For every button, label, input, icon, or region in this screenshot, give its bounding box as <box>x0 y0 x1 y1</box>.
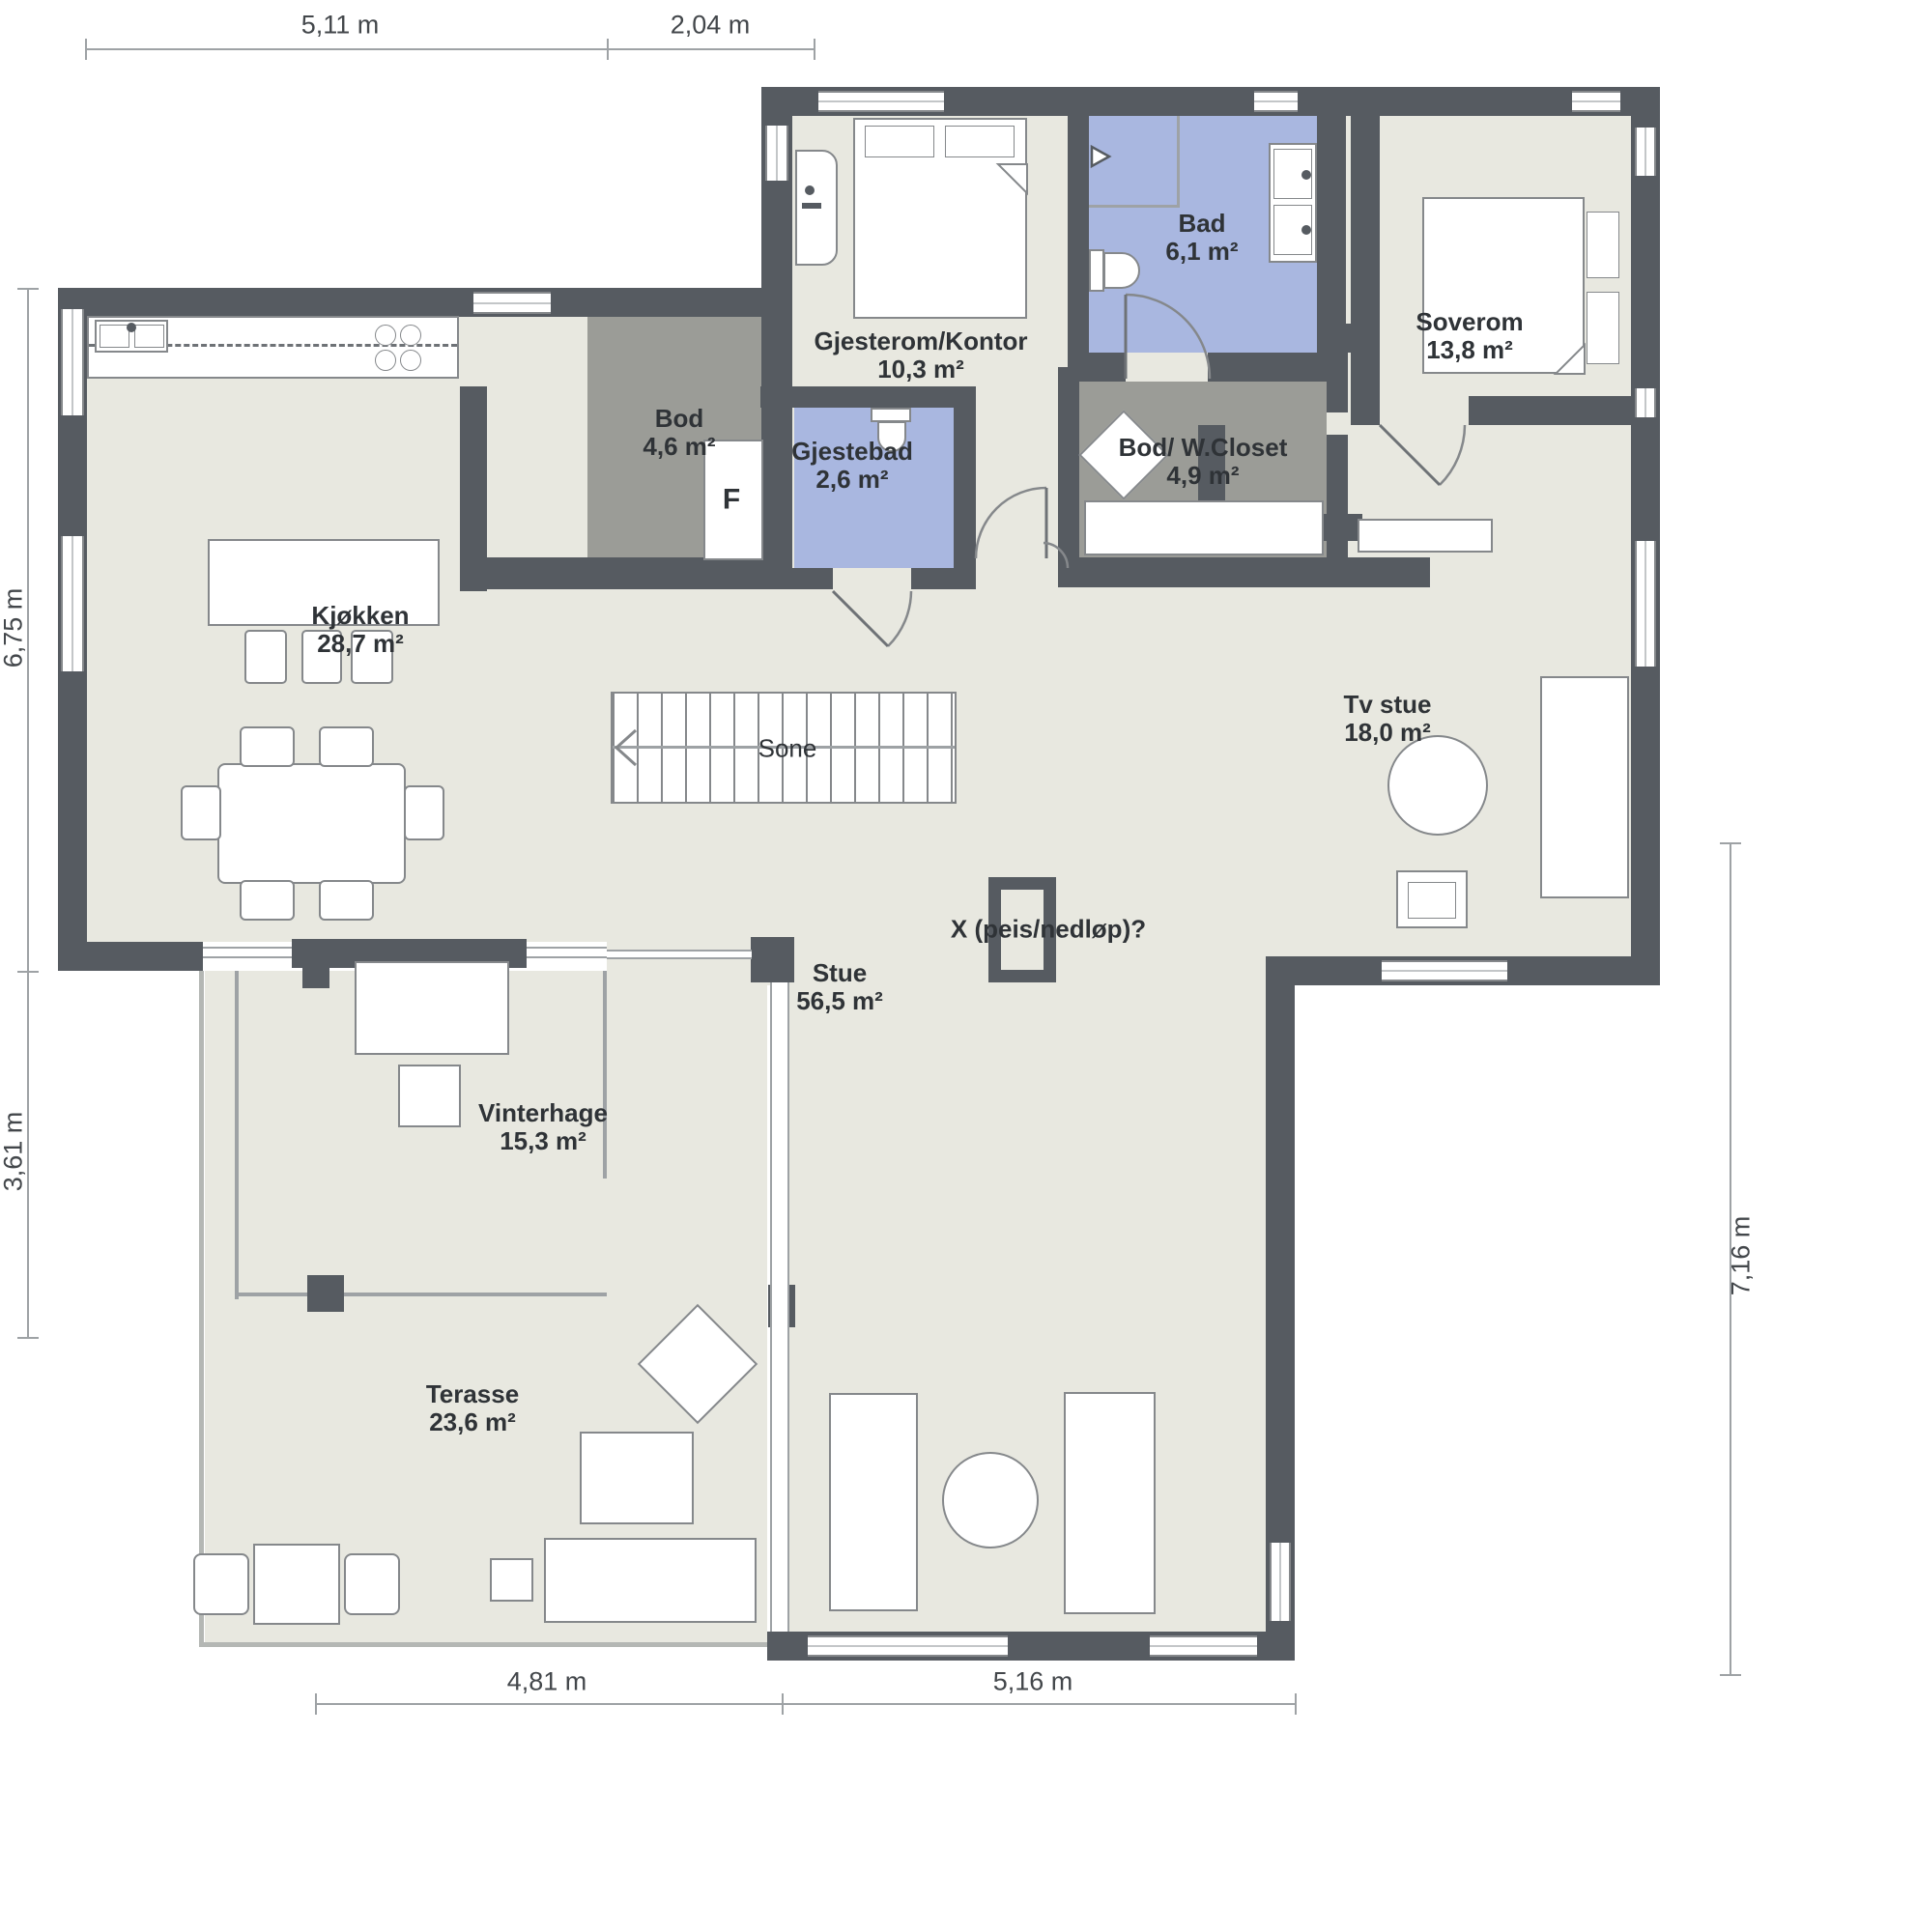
room-name: Bod <box>643 405 715 433</box>
floor-plan: 5,11 m 2,04 m 6,75 m 3,61 m 7,16 m 4,81 … <box>0 0 1916 1932</box>
room-area: 15,3 m² <box>478 1127 608 1155</box>
door-arc <box>888 591 911 646</box>
room-name: Bad <box>1165 210 1238 238</box>
room-area: 10,3 m² <box>814 355 1027 384</box>
room-label-bad: Bad 6,1 m² <box>1165 210 1238 266</box>
fireplace-note: X (peis/nedløp)? <box>951 916 1146 944</box>
room-area: 4,9 m² <box>1119 462 1288 490</box>
room-name: Soverom <box>1416 308 1523 336</box>
room-area: 28,7 m² <box>311 630 409 658</box>
room-label-soverom: Soverom 13,8 m² <box>1416 308 1523 364</box>
faucet-icon <box>1301 170 1311 180</box>
room-label-gjestebad: Gjestebad 2,6 m² <box>791 438 913 494</box>
room-name: Bod/ W.Closet <box>1119 434 1288 462</box>
room-area: 13,8 m² <box>1416 336 1523 364</box>
freezer-label: F <box>723 486 740 514</box>
room-name: Stue <box>796 959 883 987</box>
door-arc <box>1126 295 1210 379</box>
room-label-wcloset: Bod/ W.Closet 4,9 m² <box>1119 434 1288 490</box>
room-area: 6,1 m² <box>1165 238 1238 266</box>
faucet-icon <box>802 203 821 209</box>
dimension-label: 2,04 m <box>671 11 751 41</box>
dimension-label: 6,75 m <box>0 588 29 668</box>
shower-icon <box>1092 147 1109 166</box>
door-leaf <box>1380 425 1440 485</box>
door-leaf <box>833 591 888 646</box>
dimension-label: 3,61 m <box>0 1112 29 1192</box>
room-name: Vinterhage <box>478 1099 608 1127</box>
room-label-vinterhage: Vinterhage 15,3 m² <box>478 1099 608 1155</box>
room-label-tvstue: Tv stue 18,0 m² <box>1343 691 1431 747</box>
dimension-label: 4,81 m <box>507 1667 587 1697</box>
room-area: 23,6 m² <box>426 1408 519 1436</box>
room-label-terasse: Terasse 23,6 m² <box>426 1380 519 1436</box>
plan-symbol-overlay <box>0 0 1916 1932</box>
room-name: Terasse <box>426 1380 519 1408</box>
room-name: Tv stue <box>1343 691 1431 719</box>
stair-zone-label: Sone <box>758 735 817 763</box>
room-label-stue: Stue 56,5 m² <box>796 959 883 1015</box>
room-area: 2,6 m² <box>791 466 913 494</box>
room-area: 56,5 m² <box>796 987 883 1015</box>
room-label-kjokken: Kjøkken 28,7 m² <box>311 602 409 658</box>
dimension-label: 5,16 m <box>993 1667 1073 1697</box>
dimension-label: 7,16 m <box>1727 1216 1757 1296</box>
door-arc <box>1440 425 1465 485</box>
bed-fold <box>998 164 1027 193</box>
faucet-icon <box>127 323 136 332</box>
faucet-icon <box>1301 225 1311 235</box>
room-name: Gjesterom/Kontor <box>814 327 1027 355</box>
stair-arrow-icon <box>616 730 636 765</box>
dimension-label: 5,11 m <box>301 11 380 41</box>
room-label-gjesterom: Gjesterom/Kontor 10,3 m² <box>814 327 1027 384</box>
room-name: Kjøkken <box>311 602 409 630</box>
door-arc <box>976 488 1046 558</box>
room-name: Gjestebad <box>791 438 913 466</box>
bed-fold <box>1556 345 1585 374</box>
room-area: 18,0 m² <box>1343 719 1431 747</box>
faucet-icon <box>805 185 815 195</box>
room-area: 4,6 m² <box>643 433 715 461</box>
room-label-bod: Bod 4,6 m² <box>643 405 715 461</box>
